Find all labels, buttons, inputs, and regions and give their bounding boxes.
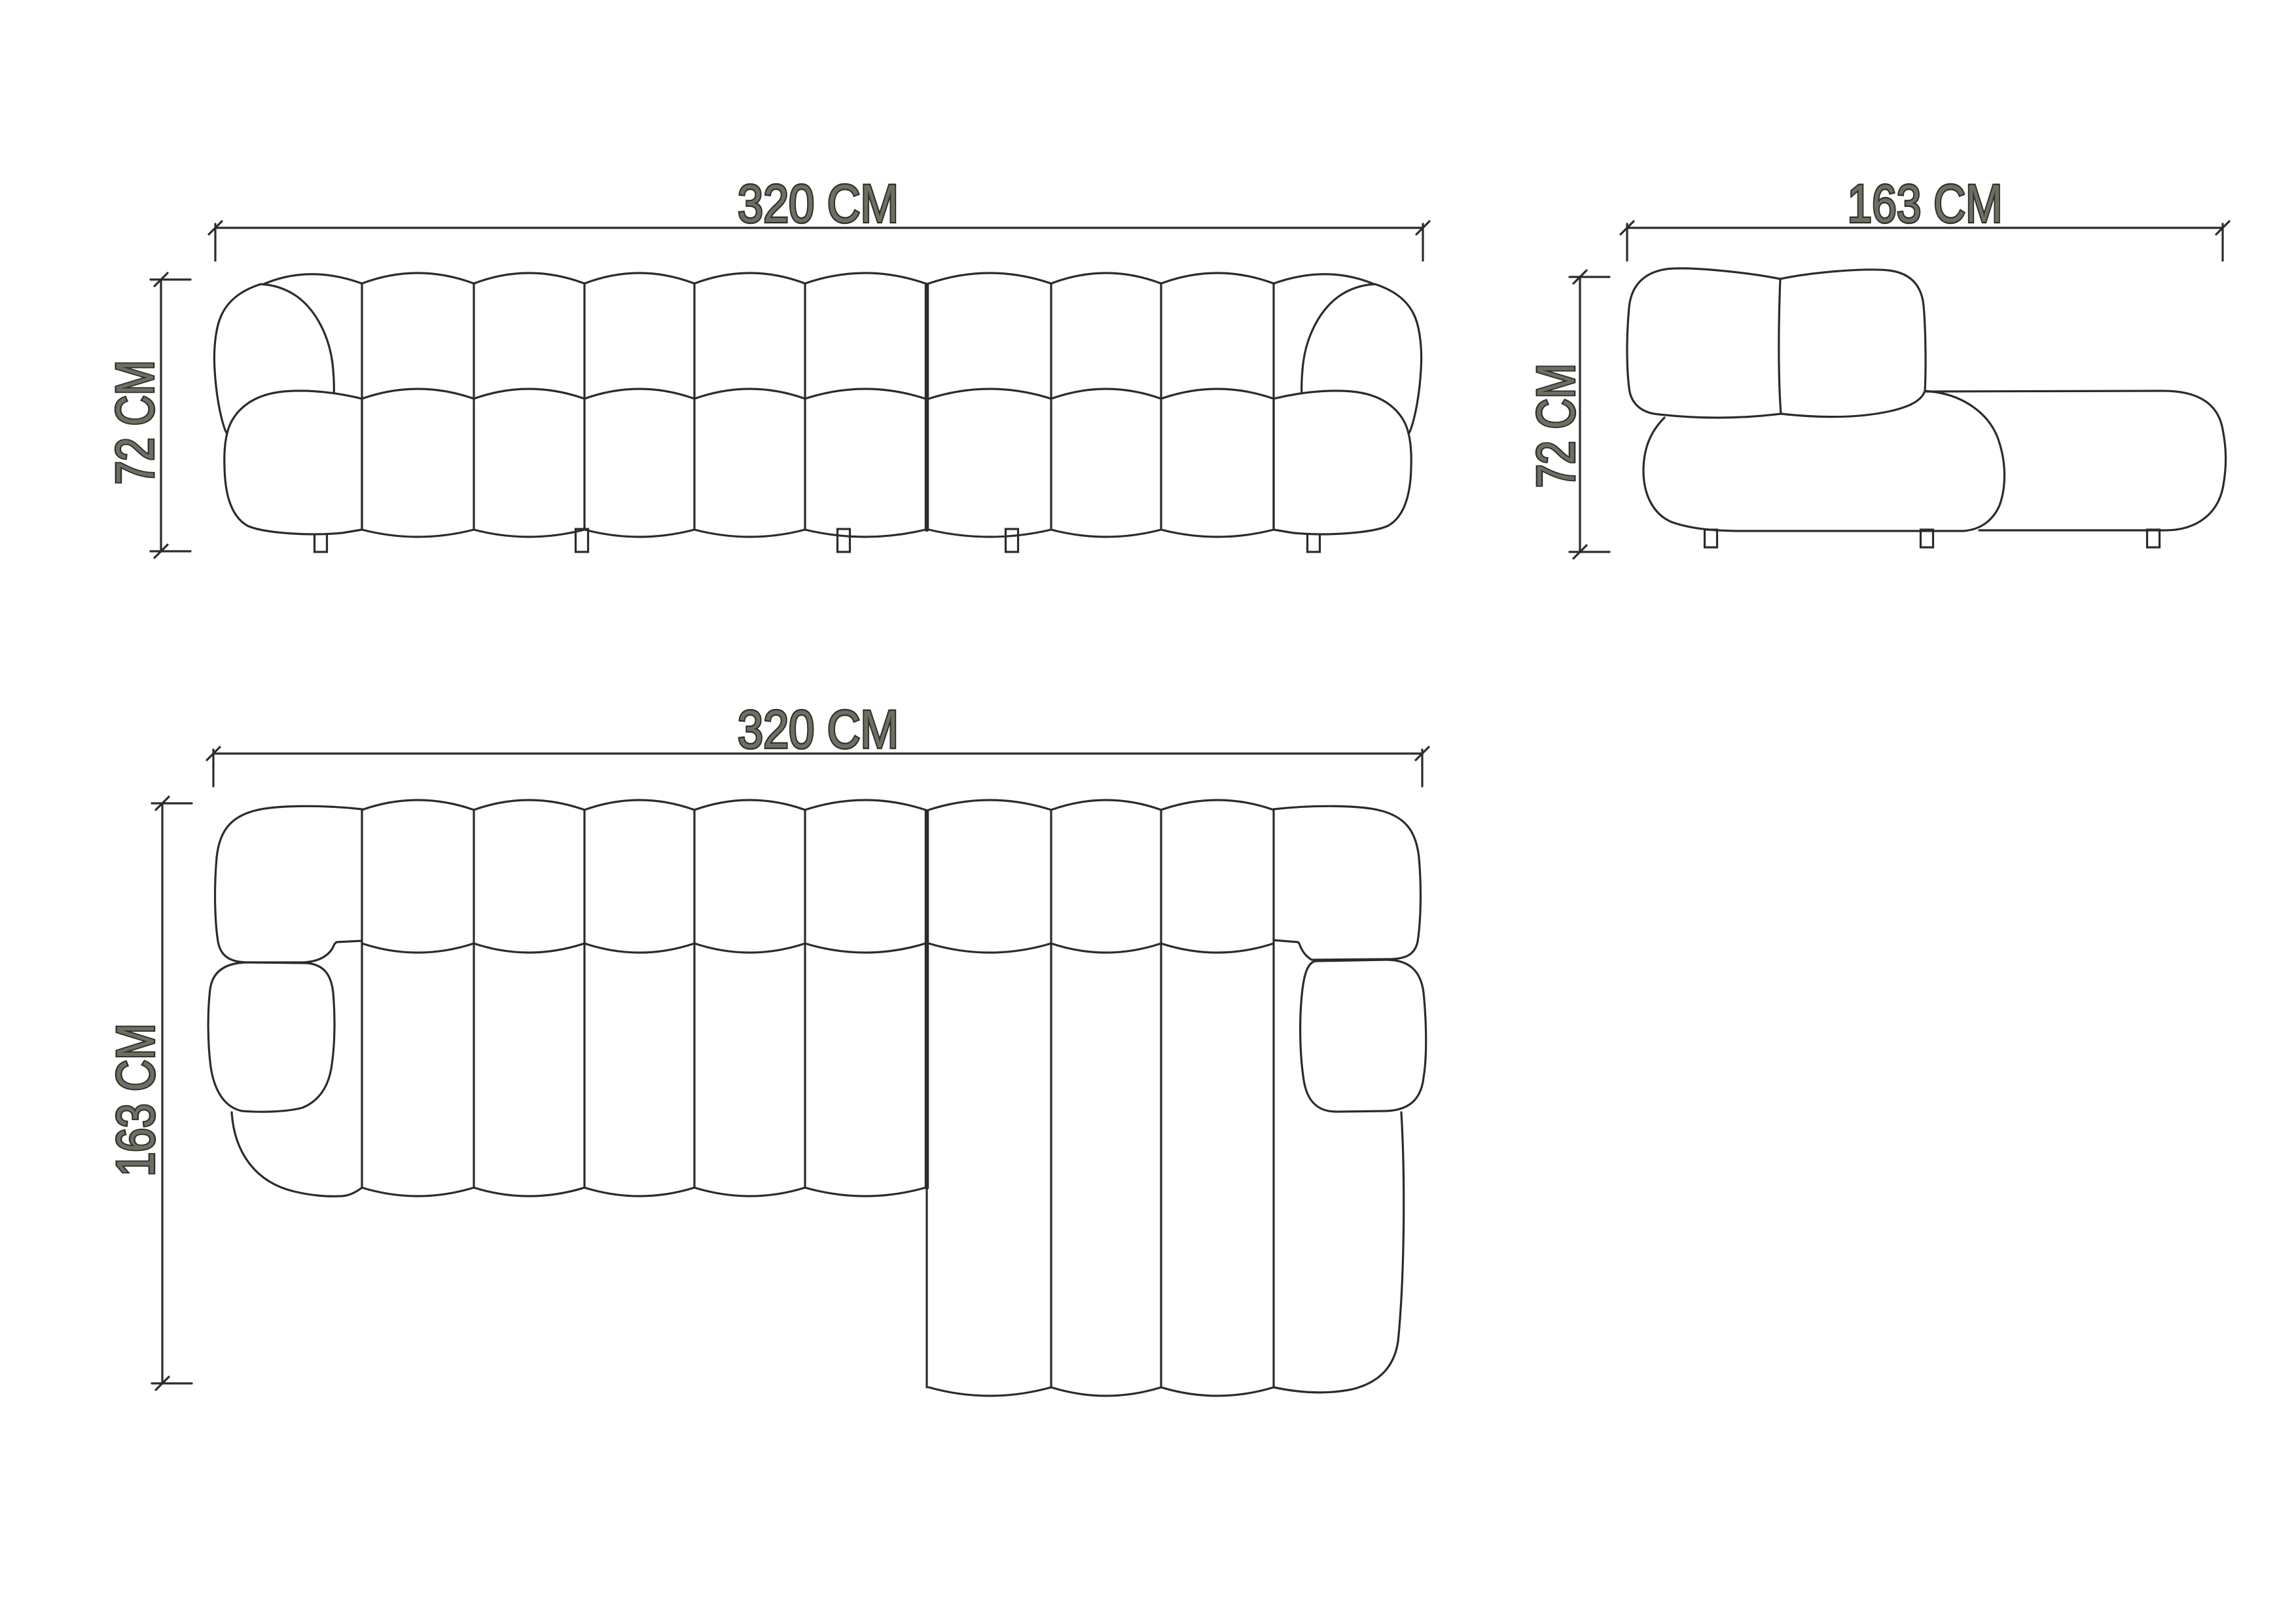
svg-text:320 CM: 320 CM (738, 700, 899, 759)
svg-text:72 CM: 72 CM (105, 360, 165, 484)
svg-text:320 CM: 320 CM (738, 174, 899, 234)
svg-text:163 CM: 163 CM (1848, 174, 2003, 234)
svg-text:163 CM: 163 CM (106, 1023, 166, 1176)
svg-text:72 CM: 72 CM (1526, 363, 1586, 488)
